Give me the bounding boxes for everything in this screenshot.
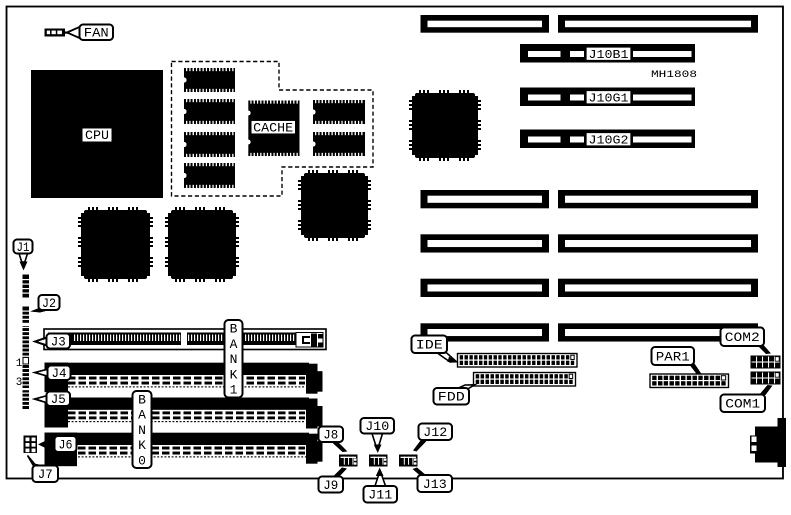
svg-text:PAR1: PAR1: [656, 349, 690, 364]
svg-text:J10G1: J10G1: [589, 91, 629, 105]
svg-text:J2: J2: [42, 296, 56, 311]
svg-text:J4: J4: [52, 366, 67, 381]
svg-text:IDE: IDE: [416, 338, 443, 353]
svg-text:A: A: [230, 337, 238, 352]
svg-text:CACHE: CACHE: [253, 121, 293, 136]
svg-text:1: 1: [230, 383, 238, 398]
svg-text:COM2: COM2: [725, 330, 760, 345]
svg-text:FAN: FAN: [84, 26, 109, 41]
svg-text:3: 3: [16, 377, 23, 389]
svg-text:N: N: [230, 352, 238, 367]
svg-text:J1: J1: [17, 240, 30, 255]
svg-text:CPU: CPU: [85, 128, 109, 143]
svg-text:K: K: [138, 438, 146, 453]
svg-text:0: 0: [138, 453, 146, 468]
svg-text:J10B1: J10B1: [589, 48, 629, 62]
svg-text:J13: J13: [423, 477, 447, 492]
svg-text:1: 1: [16, 358, 23, 370]
svg-text:B: B: [230, 322, 238, 337]
svg-text:J9: J9: [323, 478, 338, 493]
svg-text:N: N: [138, 423, 146, 438]
svg-text:J10: J10: [365, 419, 389, 434]
svg-text:J12: J12: [423, 425, 447, 440]
svg-text:J5: J5: [51, 392, 66, 407]
svg-text:FDD: FDD: [438, 390, 465, 405]
svg-text:J3: J3: [51, 334, 66, 349]
svg-text:K: K: [230, 367, 238, 382]
svg-text:B: B: [138, 393, 146, 408]
svg-text:A: A: [138, 408, 146, 423]
svg-text:J10G2: J10G2: [589, 133, 629, 147]
svg-text:COM1: COM1: [725, 397, 760, 412]
svg-text:J11: J11: [368, 488, 392, 503]
svg-text:J8: J8: [323, 428, 338, 443]
svg-text:J6: J6: [59, 437, 73, 452]
svg-text:J7: J7: [38, 467, 53, 482]
svg-text:MH1808: MH1808: [651, 69, 697, 81]
